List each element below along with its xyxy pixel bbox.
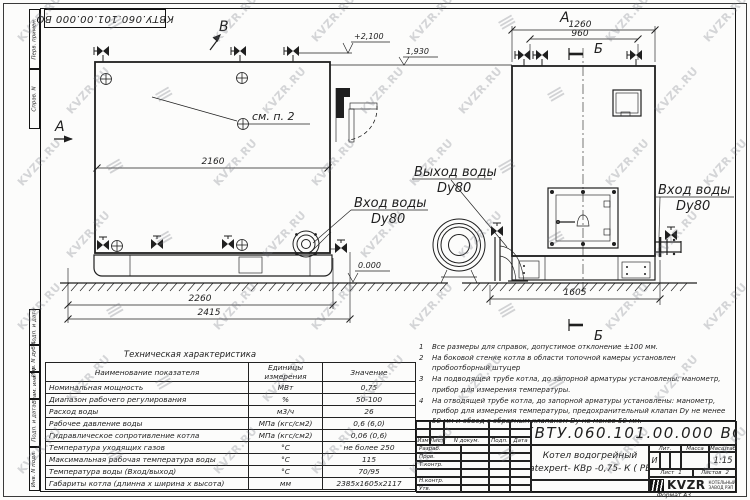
view-a-label: А — [559, 10, 570, 26]
valve-icon — [665, 227, 677, 240]
tb-prov: Пров. — [416, 453, 461, 461]
valve-icon — [284, 46, 299, 62]
position-marker-icon — [112, 241, 123, 252]
table-row: Диапазон рабочего регулирования%50-100 — [46, 394, 416, 406]
elev-2100: +2,100 — [354, 32, 384, 41]
valve-icon — [491, 223, 503, 236]
format-label: Формат А3 — [614, 492, 734, 499]
tb-scale-value: 1:15 — [709, 452, 737, 469]
tech-table: Наименование показателя Единицы измерени… — [45, 362, 416, 490]
dim-960: 960 — [571, 29, 588, 39]
inlet-label: Вход воды — [354, 196, 427, 211]
see-item-callout: см. п. 2 — [252, 110, 295, 123]
tb-utv: Утв. — [416, 485, 461, 493]
ground-hatch-left — [62, 283, 447, 291]
tb-nkontr: Н.контр. — [416, 477, 461, 485]
tb-mass-label: Масса — [681, 445, 709, 452]
table-row: Максимальная рабочая температура воды°С1… — [46, 454, 416, 466]
table-row: Гидравлическое сопротивление котлаМПа (к… — [46, 430, 416, 442]
tb-lit-value: И — [649, 452, 660, 469]
col-header-units: Единицы измерения — [249, 363, 323, 382]
inlet-label-right: Вход воды — [658, 183, 731, 198]
tech-table-title: Техническая характеристика — [45, 350, 335, 360]
table-row: Температура уходящих газов°Сне более 250 — [46, 442, 416, 454]
note-item: 1Все размеры для справок, допустимое отк… — [419, 342, 735, 352]
section-b-top: Б — [594, 42, 603, 57]
section-a-label: А — [54, 119, 65, 135]
valve-icon — [231, 46, 246, 62]
title-block: Изм Лист N докум. Подп. Дата Разраб. Про… — [415, 420, 736, 492]
elev-1930: 1,930 — [406, 47, 429, 56]
inlet-dy-right: Dy80 — [676, 199, 710, 214]
table-row: Габариты котла (длинна х ширина х высота… — [46, 478, 416, 490]
position-marker-icon — [237, 73, 248, 84]
notes-list: 1Все размеры для справок, допустимое отк… — [419, 342, 735, 427]
elev-0000: 0.000 — [358, 261, 381, 270]
valve-icon — [151, 236, 163, 249]
tb-header-podp: Подп. — [489, 437, 510, 445]
tb-lit-label: Лит. — [649, 445, 681, 452]
tb-tkontr: Т.контр. — [416, 461, 461, 469]
ground — [60, 283, 697, 291]
col-header-name: Наименование показателя — [46, 363, 249, 382]
tech-characteristics: Техническая характеристика Наименование … — [45, 350, 415, 490]
tb-header-izm: Изм — [416, 437, 430, 445]
tb-blank — [416, 469, 461, 477]
tb-header-list: Лист — [430, 437, 444, 445]
valve-icon — [515, 50, 530, 66]
dim-2160: 2160 — [202, 157, 225, 167]
position-marker-icon — [238, 119, 249, 130]
note-item: 3На подводящей трубе котла, до запорной … — [419, 374, 735, 394]
position-marker-icon — [101, 74, 112, 85]
tb-doc-name: Котел водогрейный Heatexpert- КВр -0,75-… — [531, 445, 649, 480]
col-header-value: Значение — [323, 363, 416, 382]
blower-fan — [433, 219, 485, 283]
drawing-sheet: КВТУ.060.101.00.000 ВО Перв. примен. Спр… — [0, 0, 750, 500]
table-row: Расход водым3/ч26 — [46, 406, 416, 418]
note-item: 2На боковой стенке котла в области топоч… — [419, 353, 735, 373]
table-row: Рабочее давление водыМПа (кгс/см2)0,6 (6… — [46, 418, 416, 430]
tb-sheets: Листов2 — [693, 469, 737, 477]
tb-sheet: Лист1 — [649, 469, 693, 477]
outlet-label: Выход воды — [414, 165, 497, 180]
kvzr-logo-icon — [650, 479, 664, 492]
valve-icon — [97, 237, 109, 250]
tb-header-ndoc: N докум. — [444, 437, 489, 445]
table-row: Номинальная мощностьМВт0,75 — [46, 382, 416, 394]
front-view: Б Б 1260 960 А — [412, 10, 734, 344]
valve-icon — [533, 50, 548, 66]
table-row: Температура воды (Вход/выход)°С70/95 — [46, 466, 416, 478]
valve-icon — [222, 236, 234, 249]
position-marker-icon — [237, 240, 248, 251]
kvzr-company-name: КОТЕЛЬНЫЙ ЗАВОД РЭП — [709, 480, 736, 490]
tb-header-data: Дата — [510, 437, 531, 445]
dim-1605: 1605 — [564, 288, 587, 298]
inlet-dy: Dy80 — [371, 212, 405, 227]
valve-icon — [94, 46, 109, 62]
tb-mass-value — [681, 452, 709, 469]
tb-brand: KVZR КОТЕЛЬНЫЙ ЗАВОД РЭП — [649, 477, 737, 493]
arrow-b-label: В — [219, 19, 229, 35]
tb-razrab: Разраб. — [416, 445, 461, 453]
valve-icon — [627, 50, 642, 66]
valve-icon — [335, 240, 347, 253]
tb-designation: КВТУ.060.101.00.000 ВО — [531, 421, 737, 445]
kvzr-logo-text: KVZR — [667, 478, 706, 492]
tb-scale-label: Масштаб — [709, 445, 737, 452]
dim-2415: 2415 — [198, 308, 221, 318]
dim-2260: 2260 — [189, 294, 212, 304]
